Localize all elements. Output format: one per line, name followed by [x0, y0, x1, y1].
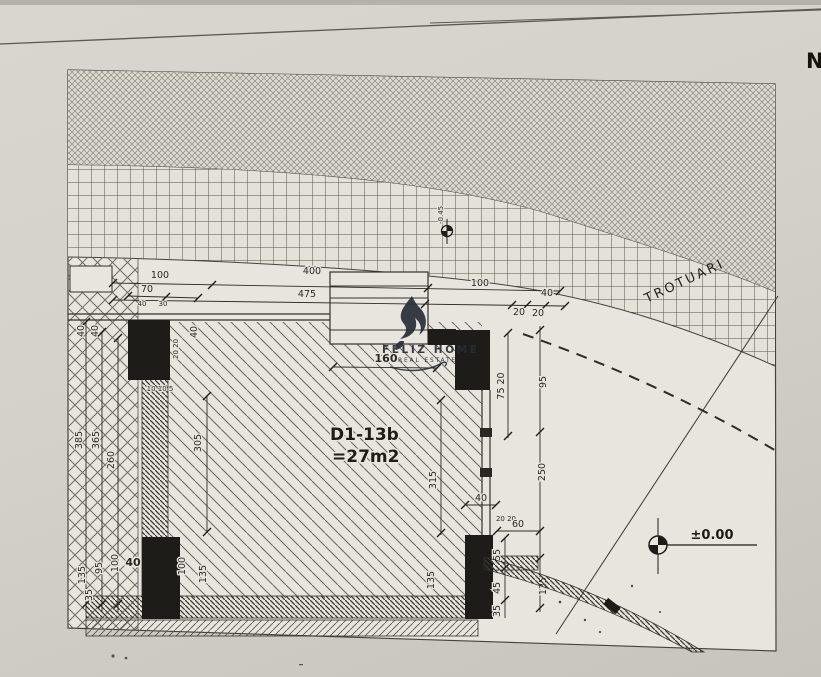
column-bottom-right — [465, 535, 493, 619]
dim-label: 60 — [512, 519, 524, 530]
scan-top-shadow — [0, 0, 821, 5]
dim-label: 95 — [538, 376, 549, 388]
dim-label: 475 — [298, 289, 316, 300]
dim-label: 40 — [138, 300, 147, 308]
scanned-floor-plan: N TROTUARI -0.45 — [0, 0, 821, 677]
dim-label: 95 — [94, 562, 105, 574]
dim-label: 70 — [141, 284, 153, 295]
dim-label: 75 20 — [496, 372, 507, 399]
dim-label: 100 — [110, 554, 121, 572]
dim-label: 40 — [475, 493, 487, 504]
scan-edge-lines — [0, 0, 821, 44]
dim-label: 40 — [541, 288, 553, 299]
corner-letter: N — [806, 49, 821, 73]
dim-label: 385 — [74, 431, 85, 449]
dim-label: 35 — [492, 605, 503, 617]
column-bottom-left — [142, 537, 180, 619]
dim-label: 260 — [106, 451, 117, 469]
dim-label: 10 10 5 — [147, 385, 174, 393]
dim-label: 135 — [198, 565, 209, 583]
dim-label: 40 — [90, 325, 101, 337]
dim-label: 30 — [159, 300, 168, 308]
right-wall-block-2 — [480, 468, 492, 477]
dim-label: 250 — [537, 463, 548, 481]
dim-label: 45 — [492, 582, 503, 594]
dim-label: 20 — [513, 307, 525, 318]
dim-label: 40 — [76, 325, 87, 337]
dim-label: 135 — [426, 571, 437, 589]
column-top-left — [128, 320, 170, 380]
dim-label: 305 — [193, 434, 204, 452]
watermark-subtitle: REAL ESTATE — [398, 357, 457, 364]
dim-label: 40 — [189, 326, 200, 338]
column-top-right — [455, 330, 490, 390]
dim-label: 40 — [125, 556, 141, 569]
dim-label: 35 — [84, 589, 95, 601]
dim-label: 20 20 — [172, 339, 180, 359]
room-area: =27m2 — [332, 447, 399, 467]
main-level-label: ±0.00 — [691, 528, 734, 543]
dim-label: 100 — [151, 270, 169, 281]
top-left-detail-box — [70, 266, 112, 292]
dim-label: 20 — [532, 308, 544, 319]
outer-paving-strip — [86, 620, 478, 636]
road-edge-line-inner — [430, 10, 821, 23]
scan-specks — [111, 654, 303, 665]
dim-label: 400 — [303, 266, 321, 277]
dim-label: 100 — [177, 557, 188, 575]
wall-segment-top-right — [428, 329, 456, 345]
dim-label: 315 — [428, 471, 439, 489]
right-wall-block-1 — [480, 428, 492, 437]
dim-label: 100 — [471, 278, 489, 289]
plan-drawing: N TROTUARI -0.45 — [0, 0, 821, 677]
room-id: D1-13b — [330, 425, 399, 445]
dim-label: 365 — [91, 431, 102, 449]
sidewalk-level-label: -0.45 — [437, 206, 445, 224]
watermark-title: FELIZ HOME — [382, 344, 480, 356]
dim-label: 135 — [77, 566, 88, 584]
